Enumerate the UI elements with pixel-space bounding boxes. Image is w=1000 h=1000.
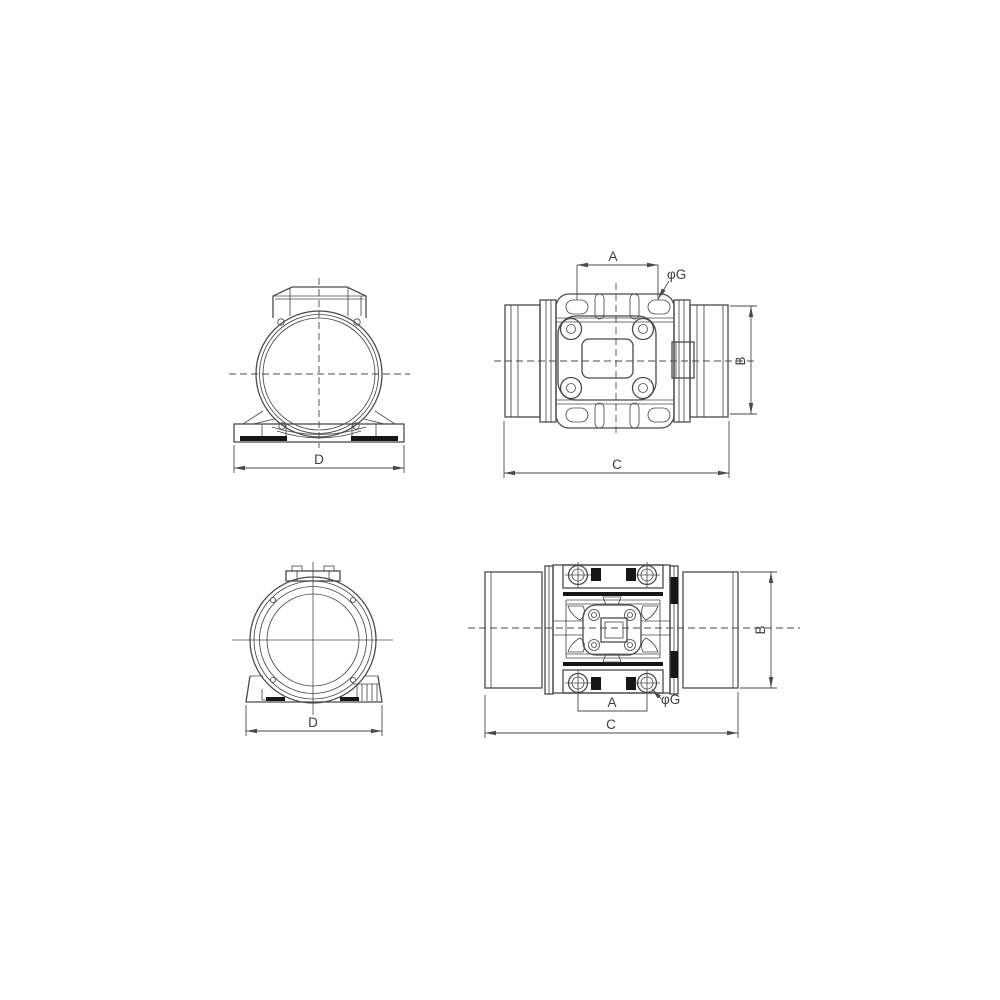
cover-bolt-hole bbox=[271, 598, 276, 603]
rubber-pad bbox=[351, 436, 398, 441]
rubber-pad bbox=[591, 568, 601, 581]
dimension-a-bottom: A bbox=[578, 694, 647, 711]
dim-label-d-front: D bbox=[314, 452, 324, 467]
dimension-b-top: B bbox=[730, 306, 757, 414]
terminal-box bbox=[273, 287, 366, 318]
terminal-box-top-view bbox=[672, 342, 694, 378]
dim-label-c-bottom: C bbox=[606, 717, 616, 732]
gasket-bar bbox=[563, 662, 663, 666]
rubber-pad bbox=[266, 697, 285, 701]
dim-label-b-top: B bbox=[733, 356, 748, 365]
dim-label-c-top: C bbox=[612, 457, 622, 472]
dimension-c-top: C bbox=[504, 421, 729, 478]
rib bbox=[630, 403, 639, 428]
cover-bolt-hole bbox=[271, 678, 276, 683]
dimension-d-end: D bbox=[246, 705, 382, 736]
top-view: A φG B C bbox=[494, 249, 757, 478]
flange-seal bbox=[670, 577, 678, 604]
end-view: D bbox=[232, 562, 393, 736]
rubber-pad bbox=[340, 697, 359, 701]
right-end-cover-bottom bbox=[670, 566, 738, 694]
technical-drawing: D bbox=[0, 0, 1000, 1000]
rib bbox=[595, 294, 604, 319]
gusset bbox=[568, 638, 584, 652]
front-view: D bbox=[229, 278, 410, 473]
dim-label-phi-g-top: φG bbox=[667, 267, 686, 282]
rib bbox=[595, 403, 604, 428]
rubber-pad bbox=[591, 677, 601, 690]
foot-bolt-holes bbox=[565, 562, 660, 696]
gusset bbox=[568, 606, 584, 620]
rubber-pad bbox=[626, 568, 636, 581]
drawing-canvas: D bbox=[0, 0, 1000, 1000]
bottom-view: B A φG C bbox=[468, 562, 800, 738]
central-housing-bottom bbox=[553, 562, 670, 696]
gasket-bar bbox=[563, 592, 663, 596]
rubber-pad bbox=[240, 436, 287, 441]
dimension-d-front: D bbox=[234, 445, 404, 473]
mounting-slot bbox=[566, 300, 588, 314]
rubber-pad bbox=[626, 677, 636, 690]
dimension-phi-g-bottom: φG bbox=[652, 689, 680, 707]
gusset bbox=[642, 606, 658, 620]
dimension-a-top: A bbox=[577, 249, 658, 300]
front-centerlines bbox=[229, 278, 410, 448]
mounting-slot bbox=[648, 300, 670, 314]
end-crosshair bbox=[232, 562, 393, 715]
corner-lug bbox=[561, 378, 582, 399]
dim-label-b-bottom: B bbox=[753, 625, 768, 634]
dim-label-a-bottom: A bbox=[607, 695, 616, 710]
flange-seal bbox=[670, 651, 678, 678]
dim-label-a-top: A bbox=[608, 249, 617, 264]
dimension-b-bottom: B bbox=[740, 572, 777, 688]
mounting-slot bbox=[648, 408, 670, 422]
gusset bbox=[642, 638, 658, 652]
dim-label-phi-g-bottom: φG bbox=[661, 692, 680, 707]
rib bbox=[630, 294, 639, 319]
left-end-cover-bottom bbox=[485, 566, 553, 694]
dim-label-d-end: D bbox=[308, 715, 318, 730]
top-centerlines bbox=[494, 283, 757, 437]
cover-bolt-hole bbox=[351, 598, 356, 603]
corner-lug bbox=[633, 378, 654, 399]
mounting-slot bbox=[566, 408, 588, 422]
cover-bolt-hole bbox=[351, 678, 356, 683]
